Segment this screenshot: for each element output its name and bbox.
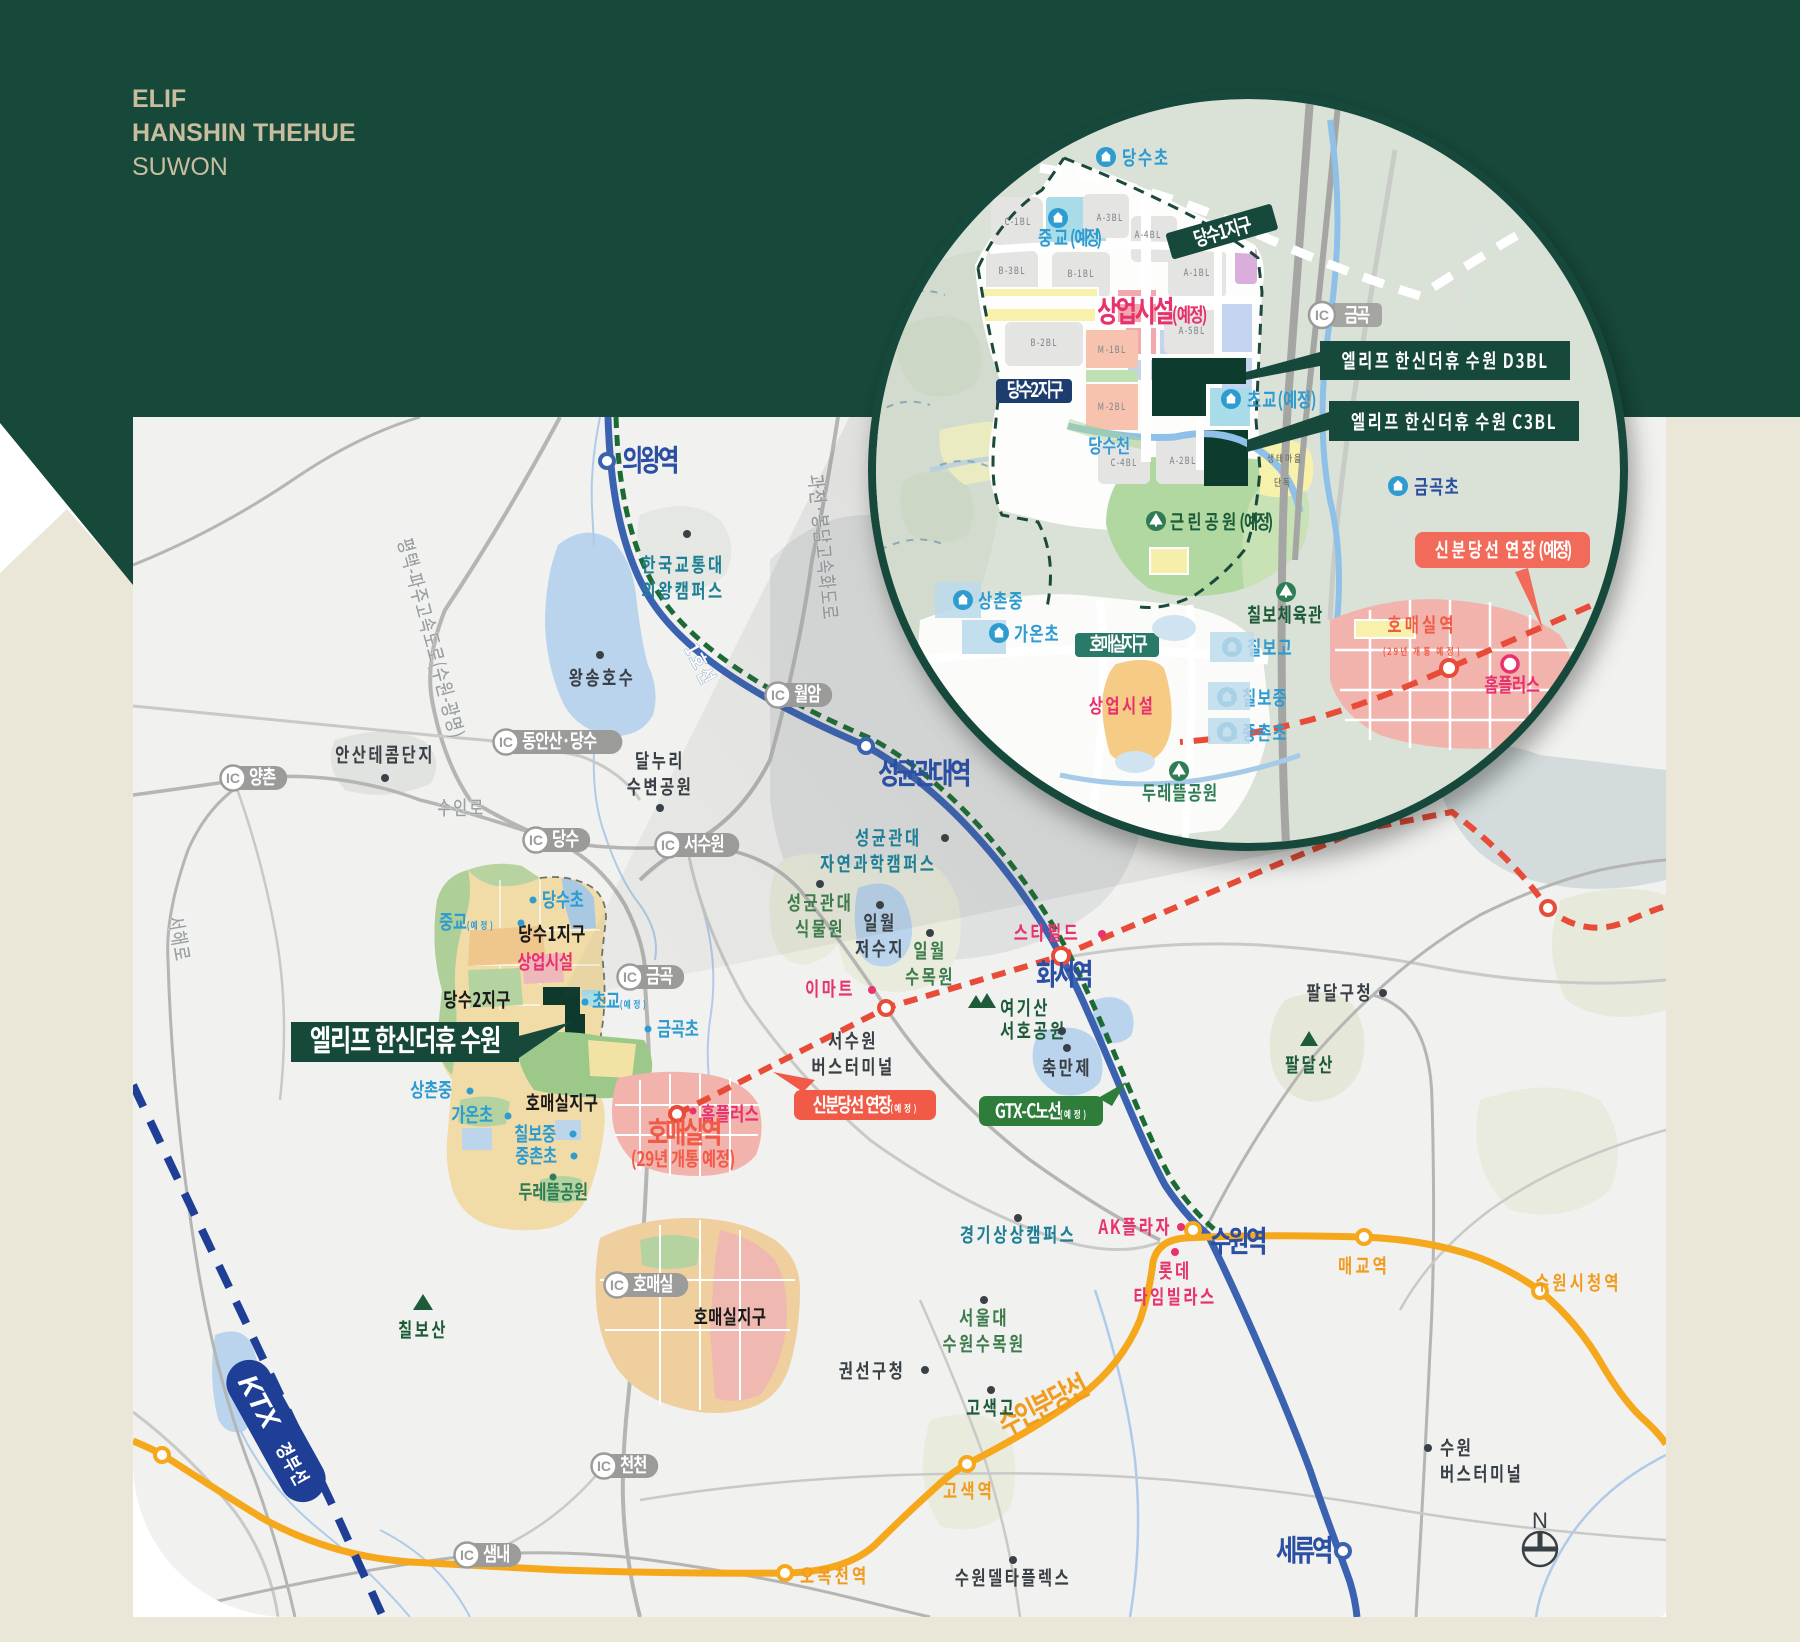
svg-text:SUWON: SUWON [132,153,228,181]
svg-text:N: N [1532,1508,1548,1533]
svg-text:IC: IC [499,734,513,750]
svg-text:IC: IC [460,1547,474,1563]
svg-text:IC: IC [623,969,637,985]
svg-text:HANSHIN THEHUE: HANSHIN THEHUE [132,119,356,147]
svg-text:IC: IC [226,770,240,786]
svg-text:IC: IC [529,832,543,848]
svg-text:IC: IC [771,687,785,703]
svg-text:IC: IC [661,837,675,853]
svg-text:IC: IC [597,1458,611,1474]
svg-text:IC: IC [610,1277,624,1293]
svg-text:IC: IC [1315,307,1329,323]
svg-text:ELIF: ELIF [132,85,186,113]
